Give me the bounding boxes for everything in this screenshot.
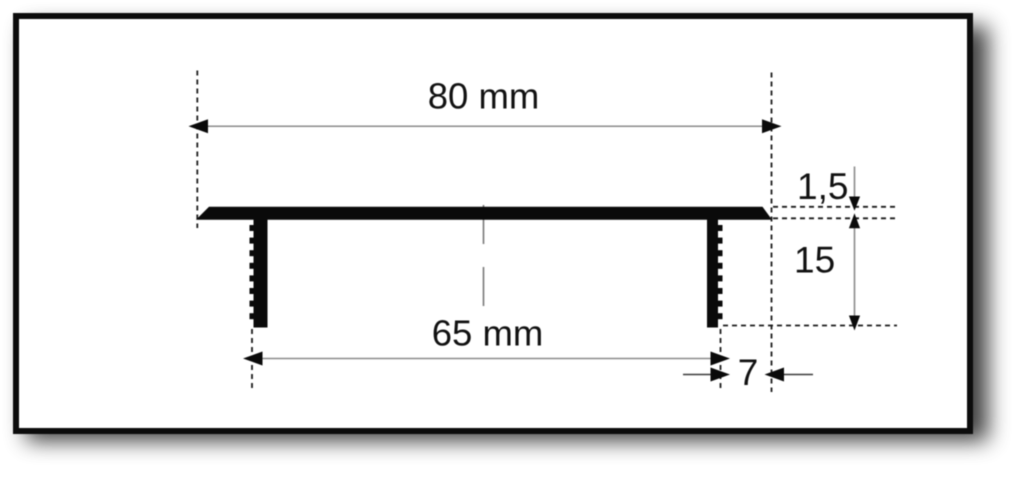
svg-text:65 mm: 65 mm [432,313,544,354]
svg-text:1,5: 1,5 [797,166,848,207]
svg-text:7: 7 [738,352,759,393]
svg-text:80 mm: 80 mm [428,76,540,117]
svg-text:15: 15 [794,240,835,281]
